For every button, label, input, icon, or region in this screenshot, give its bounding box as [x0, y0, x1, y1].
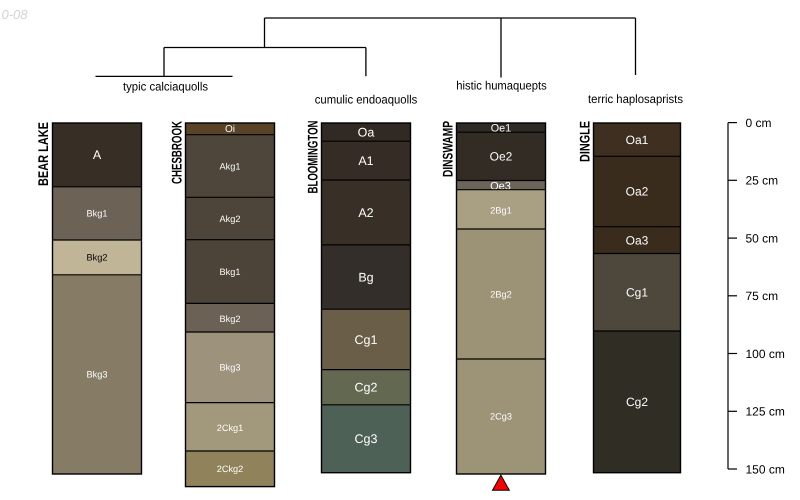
svg-text:DINSWAMP: DINSWAMP: [440, 121, 456, 177]
svg-text:A: A: [93, 148, 102, 162]
svg-text:Bkg3: Bkg3: [220, 363, 241, 373]
svg-text:Bg: Bg: [358, 271, 373, 285]
svg-text:25 cm: 25 cm: [746, 174, 779, 188]
svg-text:Cg2: Cg2: [626, 395, 648, 409]
svg-text:50 cm: 50 cm: [746, 231, 779, 245]
svg-text:typic calciaquolls: typic calciaquolls: [123, 80, 208, 94]
svg-text:Bkg1: Bkg1: [87, 209, 108, 219]
svg-text:BEAR LAKE: BEAR LAKE: [35, 122, 51, 186]
svg-text:125 cm: 125 cm: [746, 405, 785, 419]
svg-text:150 cm: 150 cm: [746, 462, 785, 476]
svg-text:75 cm: 75 cm: [746, 289, 779, 303]
svg-text:Oa: Oa: [358, 126, 375, 140]
svg-text:Oe2: Oe2: [490, 150, 513, 164]
svg-text:Bkg1: Bkg1: [220, 267, 241, 277]
svg-text:Bkg2: Bkg2: [87, 253, 108, 263]
svg-text:BLOOMINGTON: BLOOMINGTON: [305, 121, 321, 194]
svg-text:2Cg3: 2Cg3: [490, 411, 512, 421]
svg-text:Oa3: Oa3: [626, 233, 649, 247]
svg-text:Bkg3: Bkg3: [87, 370, 108, 380]
svg-text:A2: A2: [358, 206, 373, 220]
svg-text:Akg1: Akg1: [220, 161, 241, 171]
svg-text:100 cm: 100 cm: [746, 347, 785, 361]
svg-text:A1: A1: [358, 154, 373, 168]
svg-text:Oa1: Oa1: [626, 133, 649, 147]
svg-text:cumulic endoaquolls: cumulic endoaquolls: [315, 93, 418, 107]
svg-text:2019-10-08: 2019-10-08: [0, 7, 28, 22]
svg-text:Cg1: Cg1: [626, 286, 648, 300]
svg-text:Cg2: Cg2: [355, 381, 378, 395]
svg-text:Cg1: Cg1: [355, 333, 378, 347]
svg-text:terric haplosaprists: terric haplosaprists: [588, 92, 683, 106]
svg-text:Cg3: Cg3: [355, 432, 378, 446]
svg-text:Bkg2: Bkg2: [220, 314, 241, 324]
svg-text:Oi: Oi: [225, 124, 235, 135]
svg-text:DINGLE: DINGLE: [577, 121, 593, 162]
svg-text:2Bg2: 2Bg2: [490, 289, 511, 299]
svg-text:2Bg1: 2Bg1: [490, 205, 511, 215]
svg-text:histic humaquepts: histic humaquepts: [456, 79, 547, 93]
svg-text:2Ckg1: 2Ckg1: [217, 423, 244, 433]
svg-text:Akg2: Akg2: [220, 214, 241, 224]
svg-text:2Ckg2: 2Ckg2: [217, 464, 244, 474]
svg-text:CHESBROOK: CHESBROOK: [169, 121, 185, 184]
svg-text:0 cm: 0 cm: [746, 116, 772, 130]
svg-text:Oa2: Oa2: [626, 185, 649, 199]
